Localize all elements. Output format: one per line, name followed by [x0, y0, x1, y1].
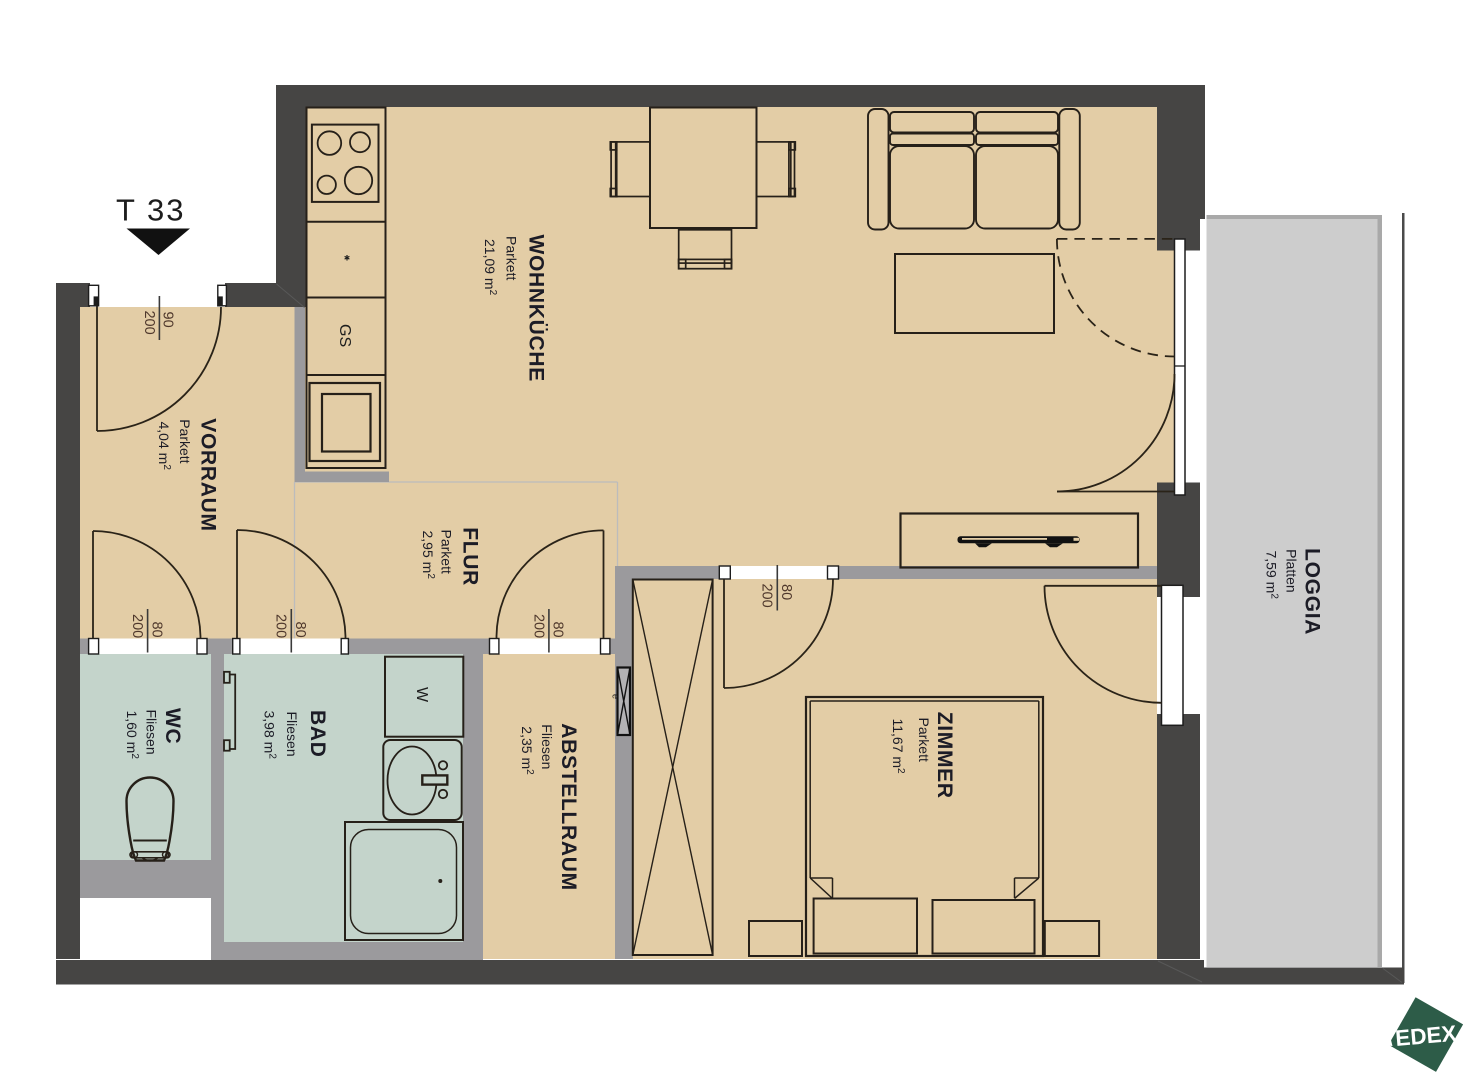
svg-text:W: W — [413, 687, 430, 703]
svg-text:e: e — [611, 694, 621, 699]
svg-text:VORRAUM: VORRAUM — [197, 418, 220, 531]
svg-text:LOGGIA: LOGGIA — [1301, 548, 1324, 635]
svg-text:80: 80 — [148, 622, 164, 638]
svg-text:Fliesen: Fliesen — [144, 710, 160, 755]
svg-text:Parkett: Parkett — [177, 419, 193, 463]
svg-text:Parkett: Parkett — [439, 530, 455, 574]
svg-text:T 33: T 33 — [116, 193, 185, 228]
svg-text:11,67 m2: 11,67 m2 — [890, 719, 906, 775]
svg-text:FLUR: FLUR — [459, 527, 482, 586]
svg-text:GS: GS — [336, 324, 353, 347]
svg-text:Fliesen: Fliesen — [284, 712, 300, 757]
svg-text:3,98 m2: 3,98 m2 — [262, 711, 278, 760]
svg-text:EDEX: EDEX — [1394, 1021, 1457, 1051]
svg-text:WOHNKÜCHE: WOHNKÜCHE — [525, 235, 548, 382]
svg-text:ZIMMER: ZIMMER — [933, 712, 956, 799]
svg-text:WC: WC — [161, 708, 184, 744]
svg-text:7,59 m2: 7,59 m2 — [1264, 551, 1280, 600]
svg-text:BAD: BAD — [306, 710, 329, 758]
svg-text:4,04 m2: 4,04 m2 — [156, 422, 172, 471]
svg-text:ABSTELLRAUM: ABSTELLRAUM — [557, 723, 580, 891]
svg-text:80: 80 — [778, 584, 794, 600]
svg-text:80: 80 — [550, 622, 566, 638]
svg-text:Fliesen: Fliesen — [539, 724, 555, 769]
svg-text:200: 200 — [129, 614, 145, 638]
svg-text:2,35 m2: 2,35 m2 — [519, 726, 535, 775]
svg-text:90: 90 — [160, 312, 176, 328]
svg-text:21,09 m2: 21,09 m2 — [482, 239, 498, 296]
svg-text:200: 200 — [273, 614, 289, 638]
svg-text:200: 200 — [530, 614, 546, 638]
svg-text:2,95 m2: 2,95 m2 — [420, 531, 436, 580]
svg-text:Parkett: Parkett — [504, 236, 520, 280]
svg-text:Platten: Platten — [1284, 549, 1300, 593]
svg-text:200: 200 — [141, 311, 157, 335]
svg-text:Parkett: Parkett — [916, 718, 932, 762]
svg-text:80: 80 — [292, 622, 308, 638]
svg-text:1,60 m2: 1,60 m2 — [124, 711, 140, 760]
svg-text:200: 200 — [759, 584, 775, 608]
